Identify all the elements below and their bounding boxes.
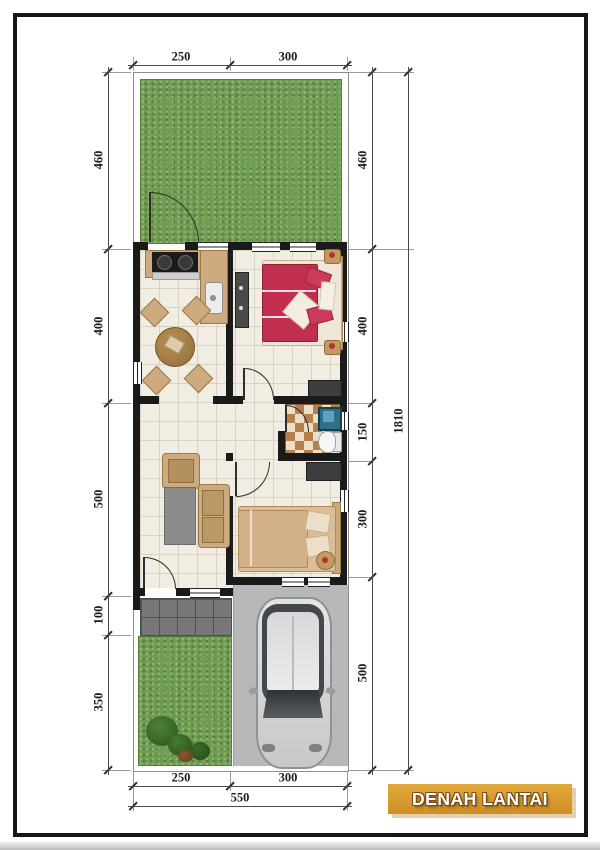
bedroom1-dresser bbox=[235, 272, 249, 328]
window bbox=[190, 588, 220, 598]
stool-center bbox=[322, 557, 328, 563]
dim-label: 100 bbox=[92, 606, 107, 625]
car-headlight bbox=[309, 744, 322, 752]
wall-segment bbox=[233, 396, 243, 404]
dim-line-overall bbox=[408, 67, 409, 775]
window bbox=[282, 577, 304, 587]
wall-segment bbox=[278, 453, 347, 461]
bush bbox=[190, 742, 210, 760]
dim-label-total: 550 bbox=[231, 791, 250, 806]
window bbox=[308, 577, 330, 587]
basin-water bbox=[323, 411, 334, 422]
wall-segment bbox=[278, 431, 285, 453]
window bbox=[340, 490, 349, 512]
toilet-bowl bbox=[318, 431, 336, 453]
wall-segment bbox=[133, 588, 145, 596]
dim-label: 400 bbox=[356, 317, 371, 336]
dim-label: 300 bbox=[356, 510, 371, 529]
shrub-red bbox=[178, 750, 193, 762]
dim-label: 460 bbox=[356, 151, 371, 170]
wall-segment bbox=[133, 396, 159, 404]
dim-label: 500 bbox=[356, 664, 371, 683]
title-block: DENAH LANTAI bbox=[388, 784, 572, 814]
extension-line bbox=[230, 771, 231, 791]
wall-segment bbox=[213, 396, 233, 404]
dim-label: 250 bbox=[172, 50, 191, 65]
car-windshield bbox=[263, 690, 323, 718]
bed2-blanket bbox=[238, 510, 308, 568]
car-roof-line bbox=[292, 616, 294, 692]
page-bottom-shadow bbox=[0, 842, 600, 850]
bedroom1-door-leaf bbox=[243, 368, 245, 400]
wall-segment bbox=[340, 512, 347, 585]
dim-line-bottom-2 bbox=[128, 806, 352, 807]
bed2-pillow bbox=[304, 510, 331, 534]
dim-label: 400 bbox=[92, 317, 107, 336]
stove-burner bbox=[157, 255, 172, 270]
window bbox=[133, 362, 142, 384]
dim-line-top bbox=[128, 65, 352, 66]
sink-faucet bbox=[210, 295, 216, 301]
coffee-table bbox=[164, 487, 196, 545]
bed1-white-pillow bbox=[319, 281, 337, 310]
armchair-cushion bbox=[168, 459, 194, 483]
dim-label-overall: 1810 bbox=[392, 409, 407, 434]
stove-burner bbox=[178, 255, 193, 270]
dim-label: 350 bbox=[92, 693, 107, 712]
dim-line-left bbox=[108, 67, 109, 775]
dim-label: 300 bbox=[279, 771, 298, 786]
blanket-seam bbox=[262, 290, 316, 292]
bedroom2-wardrobe bbox=[306, 462, 342, 481]
floor-plan-sheet: 250 300 460 400 500 100 350 460 400 150 … bbox=[0, 0, 600, 850]
extension-line bbox=[349, 249, 414, 250]
dim-line-bottom-1 bbox=[128, 786, 352, 787]
window bbox=[252, 242, 280, 252]
wall-segment bbox=[226, 453, 233, 461]
entry-door-leaf bbox=[149, 192, 151, 242]
wall-segment bbox=[274, 396, 347, 404]
nightstand-lamp bbox=[329, 343, 335, 349]
stove-front-panel bbox=[152, 272, 200, 280]
dim-line-right bbox=[372, 67, 373, 775]
window bbox=[290, 242, 316, 252]
front-door-leaf bbox=[143, 557, 145, 588]
wall-segment bbox=[133, 384, 140, 596]
terrace-pavers bbox=[140, 598, 232, 636]
dresser-handle bbox=[239, 286, 243, 290]
dim-label: 300 bbox=[279, 50, 298, 65]
wall-segment bbox=[133, 242, 140, 362]
wall-segment bbox=[133, 596, 140, 610]
bathroom-door-leaf bbox=[285, 405, 287, 432]
dim-label: 500 bbox=[92, 490, 107, 509]
title-label: DENAH LANTAI bbox=[412, 789, 548, 810]
dim-label: 250 bbox=[172, 771, 191, 786]
bedroom2-door-leaf bbox=[235, 462, 237, 496]
nightstand-lamp bbox=[329, 252, 335, 258]
sofa-cushion bbox=[202, 517, 224, 543]
dresser-handle bbox=[239, 306, 243, 310]
blanket-seam bbox=[250, 510, 252, 566]
bedroom1-cabinet bbox=[308, 380, 342, 397]
dim-label: 150 bbox=[356, 423, 371, 442]
sofa-cushion bbox=[202, 490, 224, 516]
dim-label: 460 bbox=[92, 151, 107, 170]
car-headlight bbox=[262, 744, 275, 752]
